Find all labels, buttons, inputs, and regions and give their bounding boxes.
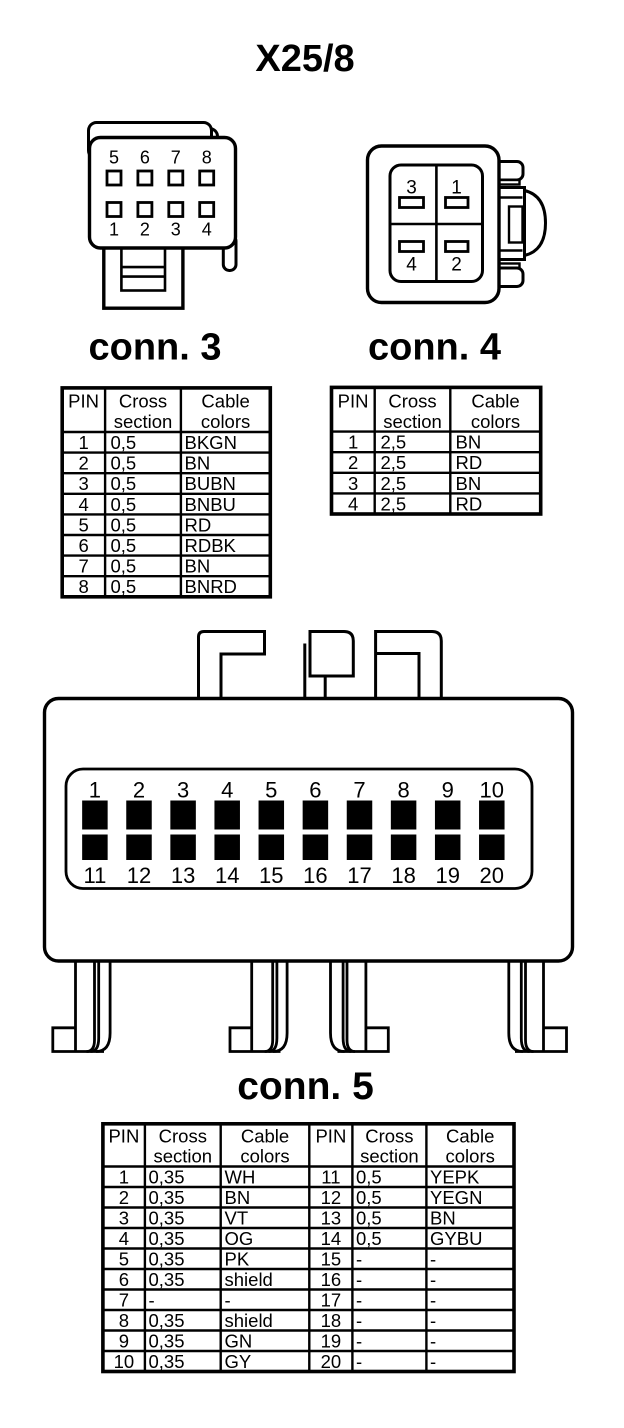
svg-text:4: 4 <box>348 493 358 514</box>
svg-text:7: 7 <box>353 778 365 803</box>
svg-text:1: 1 <box>89 778 101 803</box>
svg-text:Cable: Cable <box>446 1126 494 1147</box>
svg-text:15: 15 <box>321 1249 342 1270</box>
svg-text:0,35: 0,35 <box>149 1310 185 1331</box>
svg-text:BN: BN <box>225 1187 251 1208</box>
svg-text:2: 2 <box>140 219 150 239</box>
svg-text:17: 17 <box>321 1290 342 1311</box>
svg-text:6: 6 <box>119 1269 129 1290</box>
svg-text:0,35: 0,35 <box>149 1249 185 1270</box>
svg-text:10: 10 <box>480 778 504 803</box>
svg-text:-: - <box>356 1249 362 1270</box>
svg-text:16: 16 <box>321 1269 342 1290</box>
svg-text:section: section <box>153 1146 212 1167</box>
svg-text:Cross: Cross <box>365 1126 413 1147</box>
svg-text:0,5: 0,5 <box>356 1167 382 1188</box>
svg-text:8: 8 <box>202 148 212 168</box>
svg-text:RD: RD <box>185 514 212 535</box>
svg-text:4: 4 <box>78 494 88 515</box>
svg-text:0,5: 0,5 <box>111 576 137 597</box>
svg-text:0,5: 0,5 <box>111 494 137 515</box>
svg-text:section: section <box>360 1146 419 1167</box>
svg-text:conn. 3: conn. 3 <box>88 327 221 369</box>
svg-text:0,5: 0,5 <box>111 473 137 494</box>
svg-text:0,35: 0,35 <box>149 1351 185 1372</box>
svg-text:13: 13 <box>321 1208 342 1229</box>
svg-text:3: 3 <box>171 219 181 239</box>
svg-text:VT: VT <box>225 1208 249 1229</box>
svg-text:-: - <box>356 1269 362 1290</box>
svg-text:shield: shield <box>225 1310 273 1331</box>
svg-text:colors: colors <box>446 1146 495 1167</box>
svg-text:section: section <box>114 411 173 432</box>
svg-text:-: - <box>149 1290 155 1311</box>
svg-text:9: 9 <box>442 778 454 803</box>
svg-text:GN: GN <box>225 1331 253 1352</box>
svg-text:0,5: 0,5 <box>356 1208 382 1229</box>
svg-text:19: 19 <box>321 1331 342 1352</box>
svg-text:13: 13 <box>171 863 195 888</box>
svg-text:7: 7 <box>78 556 88 577</box>
svg-text:-: - <box>356 1290 362 1311</box>
svg-text:-: - <box>430 1331 436 1352</box>
svg-text:PIN: PIN <box>108 1126 139 1147</box>
svg-text:colors: colors <box>201 411 250 432</box>
svg-text:1: 1 <box>348 432 358 453</box>
svg-text:PK: PK <box>225 1249 250 1270</box>
svg-text:19: 19 <box>435 863 459 888</box>
svg-text:BN: BN <box>185 556 211 577</box>
svg-text:16: 16 <box>303 863 327 888</box>
svg-text:4: 4 <box>406 255 417 276</box>
svg-text:BN: BN <box>430 1208 456 1229</box>
svg-text:2: 2 <box>451 255 462 276</box>
svg-text:6: 6 <box>78 535 88 556</box>
svg-text:-: - <box>430 1310 436 1331</box>
svg-text:-: - <box>225 1290 231 1311</box>
svg-text:5: 5 <box>78 514 88 535</box>
svg-text:0,5: 0,5 <box>111 514 137 535</box>
svg-text:5: 5 <box>119 1249 129 1270</box>
svg-text:GYBU: GYBU <box>430 1228 482 1249</box>
svg-text:1: 1 <box>78 432 88 453</box>
svg-text:15: 15 <box>259 863 283 888</box>
svg-text:-: - <box>356 1331 362 1352</box>
svg-text:Cross: Cross <box>388 391 436 412</box>
svg-text:BKGN: BKGN <box>185 432 237 453</box>
svg-text:4: 4 <box>202 219 212 239</box>
svg-text:2,5: 2,5 <box>381 452 407 473</box>
svg-text:0,5: 0,5 <box>111 556 137 577</box>
svg-text:3: 3 <box>119 1208 129 1229</box>
svg-text:2: 2 <box>348 452 358 473</box>
svg-text:1: 1 <box>119 1167 129 1188</box>
svg-text:14: 14 <box>215 863 239 888</box>
svg-text:Cable: Cable <box>471 391 519 412</box>
svg-text:4: 4 <box>221 778 233 803</box>
svg-text:11: 11 <box>83 863 106 888</box>
svg-text:Cross: Cross <box>119 391 167 412</box>
svg-text:0,35: 0,35 <box>149 1269 185 1290</box>
svg-text:18: 18 <box>391 863 415 888</box>
svg-text:0,35: 0,35 <box>149 1228 185 1249</box>
svg-text:0,35: 0,35 <box>149 1208 185 1229</box>
svg-text:17: 17 <box>347 863 371 888</box>
svg-text:9: 9 <box>119 1331 129 1352</box>
svg-text:3: 3 <box>348 473 358 494</box>
svg-text:Cable: Cable <box>201 391 249 412</box>
svg-text:0,35: 0,35 <box>149 1167 185 1188</box>
svg-text:18: 18 <box>321 1310 342 1331</box>
svg-text:0,5: 0,5 <box>111 453 137 474</box>
svg-text:GY: GY <box>225 1351 252 1372</box>
svg-text:-: - <box>430 1269 436 1290</box>
svg-text:PIN: PIN <box>338 391 369 412</box>
svg-text:OG: OG <box>225 1228 254 1249</box>
svg-text:BN: BN <box>456 432 482 453</box>
svg-text:BNBU: BNBU <box>185 494 236 515</box>
svg-text:colors: colors <box>240 1146 289 1167</box>
svg-text:2: 2 <box>78 453 88 474</box>
svg-text:RDBK: RDBK <box>185 535 237 556</box>
svg-text:conn. 4: conn. 4 <box>368 327 501 369</box>
svg-text:-: - <box>356 1351 362 1372</box>
svg-text:2,5: 2,5 <box>381 493 407 514</box>
svg-text:-: - <box>356 1310 362 1331</box>
svg-text:WH: WH <box>225 1167 256 1188</box>
svg-text:11: 11 <box>321 1167 340 1188</box>
svg-text:PIN: PIN <box>68 391 99 412</box>
svg-text:12: 12 <box>321 1187 342 1208</box>
svg-text:5: 5 <box>109 148 119 168</box>
svg-text:20: 20 <box>480 863 504 888</box>
svg-text:0,35: 0,35 <box>149 1187 185 1208</box>
svg-text:6: 6 <box>309 778 321 803</box>
svg-text:8: 8 <box>78 576 88 597</box>
svg-text:PIN: PIN <box>315 1126 346 1147</box>
svg-text:BUBN: BUBN <box>185 473 236 494</box>
svg-text:YEPK: YEPK <box>430 1167 480 1188</box>
svg-text:-: - <box>430 1290 436 1311</box>
svg-text:2: 2 <box>133 778 145 803</box>
svg-text:BN: BN <box>456 473 482 494</box>
svg-text:conn. 5: conn. 5 <box>237 1065 374 1108</box>
svg-text:1: 1 <box>451 178 462 199</box>
svg-text:7: 7 <box>119 1290 129 1311</box>
svg-text:3: 3 <box>406 178 417 199</box>
svg-text:0,5: 0,5 <box>111 432 137 453</box>
svg-text:10: 10 <box>114 1351 135 1372</box>
svg-text:0,5: 0,5 <box>356 1187 382 1208</box>
svg-text:8: 8 <box>397 778 409 803</box>
svg-text:colors: colors <box>471 411 520 432</box>
svg-text:RD: RD <box>456 452 483 473</box>
svg-text:-: - <box>430 1351 436 1372</box>
svg-text:BNRD: BNRD <box>185 576 237 597</box>
svg-text:6: 6 <box>140 148 150 168</box>
svg-text:YEGN: YEGN <box>430 1187 482 1208</box>
svg-text:0,35: 0,35 <box>149 1331 185 1352</box>
svg-text:3: 3 <box>78 473 88 494</box>
svg-text:X25/8: X25/8 <box>255 38 354 80</box>
svg-text:14: 14 <box>321 1228 342 1249</box>
svg-text:8: 8 <box>119 1310 129 1331</box>
svg-text:7: 7 <box>171 148 181 168</box>
svg-text:12: 12 <box>127 863 151 888</box>
svg-text:Cable: Cable <box>241 1126 289 1147</box>
svg-text:-: - <box>430 1249 436 1270</box>
svg-text:Cross: Cross <box>159 1126 207 1147</box>
svg-text:0,5: 0,5 <box>356 1228 382 1249</box>
svg-text:2,5: 2,5 <box>381 432 407 453</box>
svg-text:3: 3 <box>177 778 189 803</box>
svg-text:RD: RD <box>456 493 483 514</box>
svg-text:2,5: 2,5 <box>381 473 407 494</box>
svg-text:20: 20 <box>321 1351 342 1372</box>
svg-text:shield: shield <box>225 1269 273 1290</box>
svg-text:section: section <box>383 411 442 432</box>
svg-text:BN: BN <box>185 453 211 474</box>
svg-text:2: 2 <box>119 1187 129 1208</box>
svg-text:0,5: 0,5 <box>111 535 137 556</box>
svg-text:5: 5 <box>265 778 277 803</box>
svg-text:4: 4 <box>119 1228 129 1249</box>
svg-text:1: 1 <box>109 219 119 239</box>
